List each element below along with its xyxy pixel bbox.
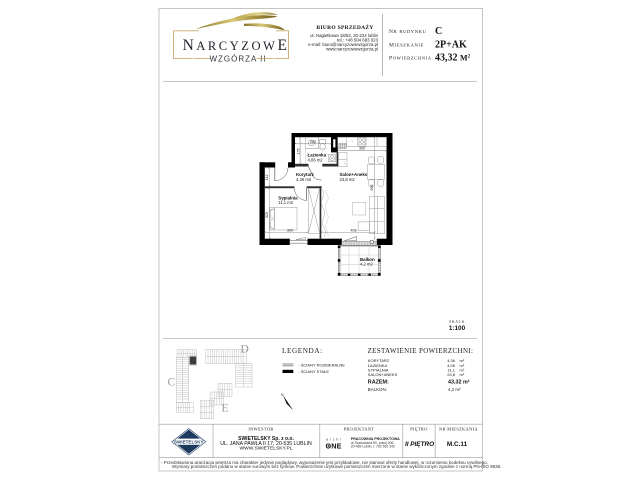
svg-text:Wymiary pomieszczeń podano w: Wymiary pomieszczeń podano w stanie suro… — [172, 464, 501, 469]
svg-text:4,2 m²: 4,2 m² — [448, 387, 461, 392]
svg-text:- ŚCIANY ROZBIERALNE: - ŚCIANY ROZBIERALNE — [298, 363, 345, 368]
svg-text:- ŚCIANY STAŁE: - ŚCIANY STAŁE — [298, 369, 329, 374]
svg-text:SWIETELSKY: SWIETELSKY — [174, 440, 204, 445]
svg-text:408: 408 — [351, 228, 357, 232]
svg-text:www.narcyzowewzgorza.pl: www.narcyzowewzgorza.pl — [326, 46, 378, 51]
svg-text:175: 175 — [296, 149, 300, 155]
svg-text:M.C.11: M.C.11 — [447, 441, 468, 448]
svg-text:1:100: 1:100 — [449, 325, 466, 332]
svg-text:PROJEKTANT: PROJEKTANT — [344, 427, 375, 432]
svg-text:300: 300 — [359, 147, 365, 151]
svg-text:4,06 m2: 4,06 m2 — [308, 158, 324, 163]
svg-text:2P+AK: 2P+AK — [435, 40, 467, 51]
svg-text:ZESTAWIENIE POWIERZCHNI:: ZESTAWIENIE POWIERZCHNI: — [368, 347, 474, 355]
svg-text:D: D — [241, 344, 249, 356]
svg-text:300: 300 — [287, 228, 293, 232]
svg-text:282: 282 — [310, 140, 316, 144]
svg-text:43,32 m²: 43,32 m² — [448, 380, 470, 386]
svg-text:RAZEM:: RAZEM: — [368, 380, 389, 386]
svg-text:BIURO SPRZEDAŻY: BIURO SPRZEDAŻY — [316, 24, 373, 31]
svg-text:NR MIESZKANIA: NR MIESZKANIA — [439, 427, 478, 432]
svg-text:23,8 m2: 23,8 m2 — [340, 177, 356, 182]
svg-text:E: E — [222, 403, 229, 415]
svg-text:320: 320 — [265, 212, 269, 218]
svg-text:20-469 Lublin, t. 792 552 342: 20-469 Lublin, t. 792 552 342 — [351, 445, 395, 449]
svg-text:4,2 m2: 4,2 m2 — [360, 262, 373, 267]
svg-text:43,32 M2: 43,32 M2 — [435, 53, 471, 64]
svg-text:WWW.SWIETELSKY.PL: WWW.SWIETELSKY.PL — [240, 446, 293, 452]
svg-text:C: C — [435, 26, 442, 37]
svg-text:BALKON:: BALKON: — [368, 387, 387, 392]
svg-text:142: 142 — [265, 175, 269, 181]
svg-text:4,36 m2: 4,36 m2 — [296, 177, 312, 182]
svg-text:PIĘTRO: PIĘTRO — [410, 427, 427, 432]
svg-text:606: 606 — [370, 185, 374, 191]
svg-text:SKALA: SKALA — [449, 320, 465, 324]
svg-text:C: C — [168, 377, 176, 389]
svg-text:SALON+ANEKS: SALON+ANEKS — [368, 372, 398, 377]
svg-text:INWESTOR: INWESTOR — [248, 427, 273, 432]
svg-text:LEGENDA:: LEGENDA: — [282, 347, 323, 355]
svg-text:m²: m² — [460, 372, 465, 377]
svg-text:II PIĘTRO: II PIĘTRO — [405, 441, 434, 448]
svg-text:23,8: 23,8 — [447, 372, 456, 377]
svg-text:11,1 m2: 11,1 m2 — [278, 200, 293, 205]
svg-text:NARCYZOWE: NARCYZOWE — [183, 37, 290, 54]
